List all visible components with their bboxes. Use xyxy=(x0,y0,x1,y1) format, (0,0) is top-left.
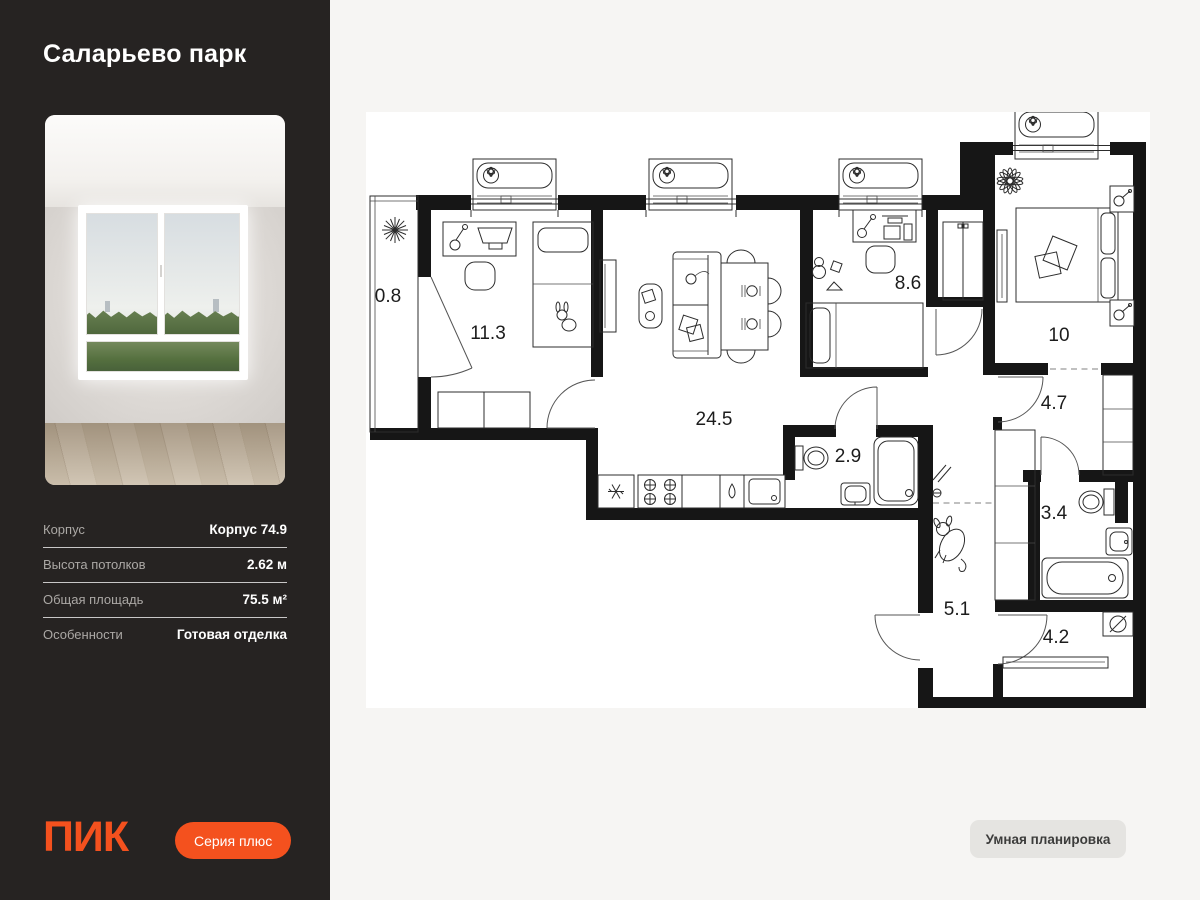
sidebar: Саларьево парк Корпус Корпус 74.9 Вы xyxy=(0,0,330,900)
window-pane-left xyxy=(86,213,158,335)
window-pane-right xyxy=(164,213,240,335)
dresser-icon xyxy=(997,230,1007,302)
walls xyxy=(370,142,1146,708)
toilet-icon xyxy=(1079,489,1114,515)
closet-icon xyxy=(943,222,983,300)
bathroom1-door xyxy=(835,387,877,429)
wood-floor xyxy=(45,423,285,485)
detail-label: Особенности xyxy=(43,627,123,642)
detail-row-total-area: Общая площадь 75.5 м² xyxy=(43,583,287,618)
treeline xyxy=(86,308,158,334)
bedroom1-door xyxy=(547,380,595,428)
window-handle xyxy=(160,265,162,277)
dog-icon xyxy=(933,516,970,572)
balcony xyxy=(370,196,418,432)
interior-photo xyxy=(45,115,285,485)
window xyxy=(646,195,736,217)
desk-icon xyxy=(853,210,916,242)
shower-icon xyxy=(874,437,918,505)
dining-table-icon xyxy=(721,250,781,363)
sofa-icon xyxy=(673,252,721,358)
window-pane-bottom xyxy=(86,341,240,372)
photo-window xyxy=(78,205,248,380)
detail-row-korpus: Корпус Корпус 74.9 xyxy=(43,513,287,548)
city-skyline xyxy=(105,301,110,312)
window xyxy=(839,195,922,217)
detail-value: Корпус 74.9 xyxy=(209,522,287,537)
toys-icon xyxy=(813,258,843,291)
vent-box-4 xyxy=(1015,112,1098,159)
property-details: Корпус Корпус 74.9 Высота потолков 2.62 … xyxy=(43,513,287,652)
single-bed-icon xyxy=(806,303,923,368)
detail-label: Общая площадь xyxy=(43,592,143,607)
room-label-bedroom1: 11.3 xyxy=(470,323,506,344)
wardrobe-icon xyxy=(1103,375,1133,475)
room-label-bedroom3: 10 xyxy=(1048,325,1069,346)
bathroom2-door xyxy=(1041,437,1079,475)
project-title: Саларьево парк xyxy=(43,40,246,69)
mop-icon xyxy=(933,465,951,497)
pik-logo: ПИК xyxy=(43,816,128,859)
floor-plan: 0.8 11.3 24.5 8.6 10 4.7 2.9 3.4 5.1 4.2 xyxy=(366,112,1150,708)
room-label-living: 24.5 xyxy=(696,409,733,430)
treeline xyxy=(164,308,240,334)
detail-label: Высота потолков xyxy=(43,557,146,572)
room-label-entry: 4.2 xyxy=(1043,627,1069,648)
shoe-bench-icon xyxy=(1003,657,1108,668)
double-bed-icon xyxy=(1016,208,1118,302)
detail-value: 75.5 м² xyxy=(242,592,287,607)
window xyxy=(1013,142,1110,155)
living-room-furniture xyxy=(598,250,785,508)
coffee-table-icon xyxy=(639,284,662,328)
detail-row-features: Особенности Готовая отделка xyxy=(43,618,287,652)
corridor-door xyxy=(998,377,1043,422)
wardrobe-icon xyxy=(438,392,530,428)
floor-plan-card: 0.8 11.3 24.5 8.6 10 4.7 2.9 3.4 5.1 4.2 xyxy=(366,112,1150,708)
bedroom3-furniture xyxy=(997,168,1134,326)
room-label-bathroom1: 2.9 xyxy=(835,446,861,467)
entrance-door xyxy=(875,615,920,660)
smart-layout-button[interactable]: Умная планировка xyxy=(970,820,1126,858)
sink-icon xyxy=(1106,528,1132,555)
series-plus-button[interactable]: Серия плюс xyxy=(175,822,291,859)
plant-icon xyxy=(997,168,1024,194)
detail-value: Готовая отделка xyxy=(177,627,287,642)
bedroom1-furniture xyxy=(438,222,593,428)
balcony-door xyxy=(431,277,472,377)
detail-label: Корпус xyxy=(43,522,85,537)
electric-panel-icon xyxy=(1103,612,1133,636)
chair-icon xyxy=(465,262,495,290)
city-skyline xyxy=(213,299,219,312)
room-label-bedroom2: 8.6 xyxy=(895,273,921,294)
chair-icon xyxy=(866,246,895,273)
room-label-balcony: 0.8 xyxy=(375,286,401,307)
room-label-bathroom2: 3.4 xyxy=(1041,503,1068,524)
toilet-icon xyxy=(795,446,828,470)
counter xyxy=(682,475,720,508)
counter-unit xyxy=(720,475,744,508)
stove-icon xyxy=(638,475,682,508)
desk-icon xyxy=(443,222,516,256)
single-bed-icon xyxy=(533,222,593,347)
doors xyxy=(431,277,1079,664)
bedroom2-door xyxy=(936,309,982,355)
detail-value: 2.62 м xyxy=(247,557,287,572)
sink-icon xyxy=(841,483,870,505)
room-label-hallway: 5.1 xyxy=(944,599,970,620)
photo-ceiling xyxy=(45,115,285,207)
room-label-corridor: 4.7 xyxy=(1041,393,1067,414)
window xyxy=(471,195,558,217)
kitchen-icons xyxy=(598,475,785,508)
bathtub-icon xyxy=(1042,558,1128,598)
detail-row-ceiling-height: Высота потолков 2.62 м xyxy=(43,548,287,583)
